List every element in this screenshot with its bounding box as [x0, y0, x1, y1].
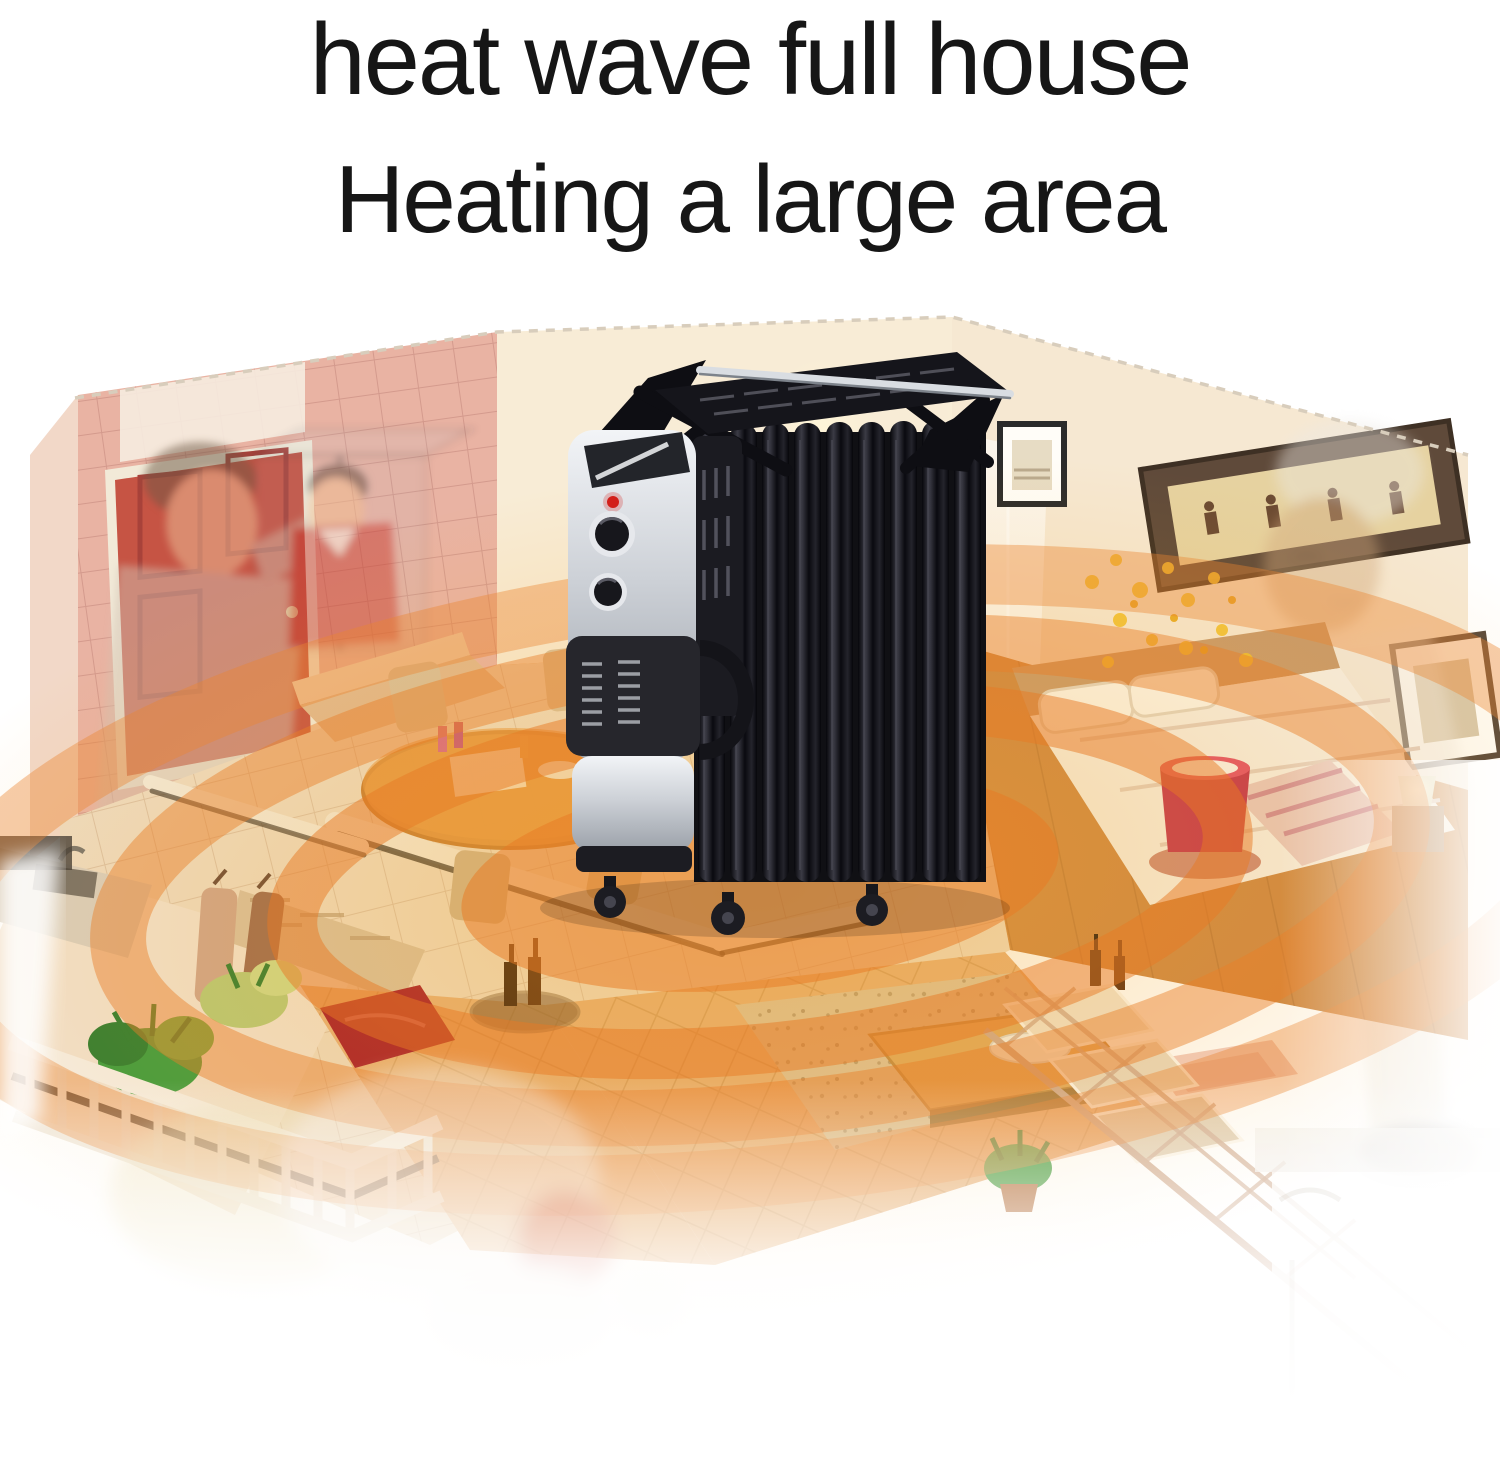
thermostat-knob [589, 511, 635, 557]
bottom-fade [0, 1080, 1500, 1462]
radiator-heater [540, 352, 1012, 938]
headline-line-1: heat wave full house [0, 10, 1500, 111]
power-knob [589, 573, 627, 611]
heater-product-ad: heat wave full house Heating a large are… [0, 0, 1500, 1462]
headline-line-2: Heating a large area [0, 152, 1500, 248]
